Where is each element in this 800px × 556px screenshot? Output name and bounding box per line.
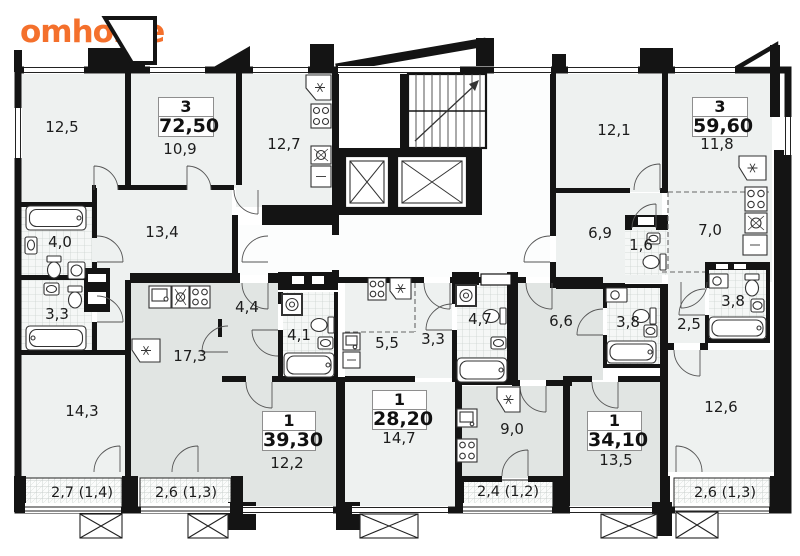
balcony-label-right: 2,6 (1,3) xyxy=(670,485,780,501)
sink-icon xyxy=(491,337,506,349)
room-label-6-9: 6,9 xyxy=(568,224,632,242)
room-label-13-5: 13,5 xyxy=(584,451,648,469)
room-label-4-7: 4,7 xyxy=(448,310,512,328)
apartment-total-area: 28,20 xyxy=(373,410,426,429)
apartment-badge-39-30[interactable]: 1 39,30 xyxy=(262,411,316,451)
room-label-12-2: 12,2 xyxy=(255,454,319,472)
elevator-2 xyxy=(397,156,467,208)
floor-plan-drawing xyxy=(0,0,800,556)
bathtub-icon xyxy=(26,326,86,350)
room-label-4-1: 4,1 xyxy=(267,326,331,344)
balcony-label-center-left: 2,6 (1,3) xyxy=(131,485,241,501)
room-label-4-4: 4,4 xyxy=(215,298,279,316)
toilet-icon xyxy=(643,254,666,270)
stove-icon xyxy=(190,286,210,308)
bathtub-icon xyxy=(284,353,334,377)
room-label-11-8: 11,8 xyxy=(685,135,749,153)
kitchen-counter-icon xyxy=(343,352,360,368)
room-label-10-9: 10,9 xyxy=(148,140,212,158)
apartment-total-area: 39,30 xyxy=(263,431,315,450)
room-label-2-5: 2,5 xyxy=(657,315,721,333)
stove-icon xyxy=(457,439,477,462)
balcony-label-left: 2,7 (1,4) xyxy=(27,485,137,501)
balcony-label-center-right: 2,4 (1,2) xyxy=(453,484,563,500)
room-label-12-7: 12,7 xyxy=(252,135,316,153)
sink-icon xyxy=(709,274,728,288)
room-label-17-3: 17,3 xyxy=(158,347,222,365)
sink-icon xyxy=(44,283,59,295)
room-label-14-3: 14,3 xyxy=(50,402,114,420)
fridge-icon xyxy=(390,278,411,299)
kitchen-sink-icon xyxy=(457,409,477,427)
room-label-9-0: 9,0 xyxy=(480,420,544,438)
bathtub-icon xyxy=(26,206,86,230)
kitchen-counter-icon xyxy=(311,166,331,187)
room-label-3-8b: 3,8 xyxy=(701,292,765,310)
stove-icon xyxy=(745,187,767,211)
washing-machine-icon xyxy=(282,294,302,315)
sink-icon xyxy=(68,262,85,279)
elevator-1 xyxy=(345,156,389,208)
room-label-4-0: 4,0 xyxy=(28,233,92,251)
kitchen-sink-icon xyxy=(172,286,189,308)
stove-icon xyxy=(368,278,386,300)
apartment-total-area: 34,10 xyxy=(588,431,641,450)
apartment-total-area: 59,60 xyxy=(693,117,747,136)
apartment-badge-34-10[interactable]: 1 34,10 xyxy=(587,411,642,451)
bathtub-icon xyxy=(457,358,507,382)
toilet-icon xyxy=(47,256,61,278)
floor-plan-page: omhome xyxy=(0,0,800,556)
kitchen-sink-icon xyxy=(745,213,767,233)
room-label-13-4: 13,4 xyxy=(130,223,194,241)
balcony-railings xyxy=(80,512,718,538)
room-label-12-1: 12,1 xyxy=(582,121,646,139)
apartment-badge-59-60[interactable]: 3 59,60 xyxy=(692,97,748,137)
kitchen-counter-icon xyxy=(743,235,767,255)
room-label-12-6: 12,6 xyxy=(689,398,753,416)
apartment-total-area: 72,50 xyxy=(159,117,213,136)
sink-icon xyxy=(606,288,627,302)
apartment-badge-72-50[interactable]: 3 72,50 xyxy=(158,97,214,137)
room-label-3-3: 3,3 xyxy=(25,305,89,323)
room-label-14-7: 14,7 xyxy=(367,429,431,447)
apartment-badge-28-20[interactable]: 1 28,20 xyxy=(372,390,427,430)
staircase xyxy=(408,74,486,148)
room-label-7-0: 7,0 xyxy=(678,221,742,239)
bathtub-icon xyxy=(607,341,656,363)
room-label-12-5: 12,5 xyxy=(30,118,94,136)
stove-icon xyxy=(311,104,331,128)
washing-machine-icon xyxy=(456,285,476,306)
kitchen-sink-icon xyxy=(149,286,171,308)
room-label-3-3c: 3,3 xyxy=(401,330,465,348)
room-label-3-8: 3,8 xyxy=(596,313,660,331)
room-label-6-6: 6,6 xyxy=(529,312,593,330)
